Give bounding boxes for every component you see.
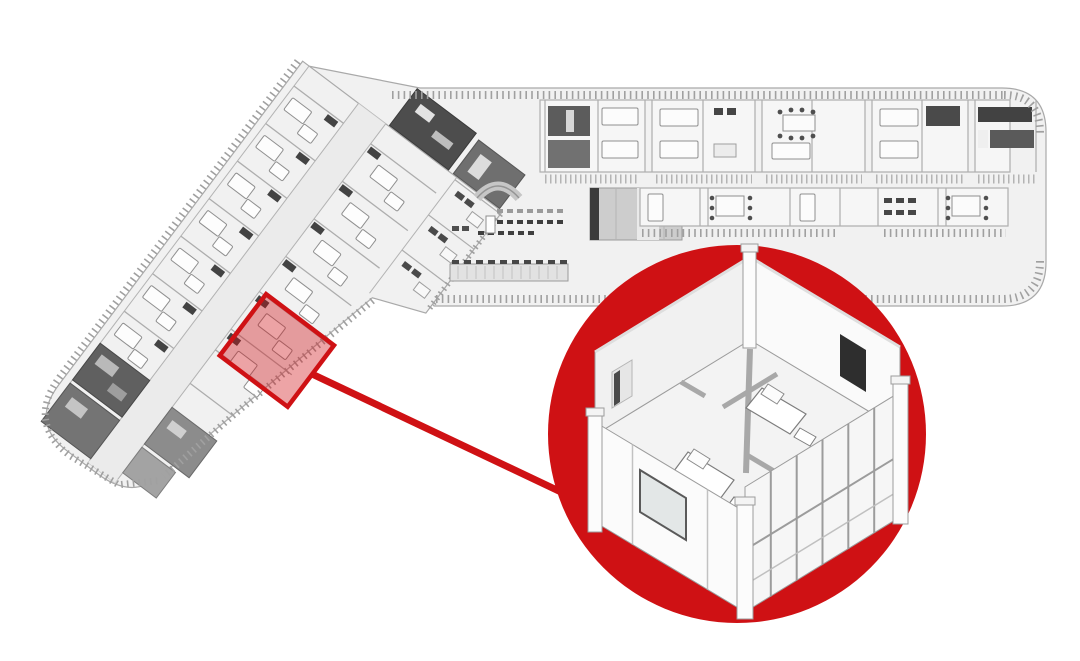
storage-shelf xyxy=(566,110,574,132)
floor-plan-figure xyxy=(0,0,1080,661)
dark-storage-room xyxy=(548,140,590,168)
patient-bed xyxy=(800,194,815,221)
meeting-table xyxy=(716,196,744,216)
kiosk xyxy=(486,216,495,233)
dark-desk xyxy=(990,130,1034,148)
core-dark-wall xyxy=(590,188,599,240)
dark-desk xyxy=(978,107,1032,122)
patient-bed xyxy=(648,194,663,221)
figure-canvas xyxy=(0,0,1080,661)
meeting-table xyxy=(783,115,815,131)
dark-panel xyxy=(926,106,960,126)
door-leaf xyxy=(614,370,620,406)
desk-return xyxy=(978,130,988,148)
shower-tray xyxy=(714,144,736,157)
meeting-table xyxy=(952,196,980,216)
